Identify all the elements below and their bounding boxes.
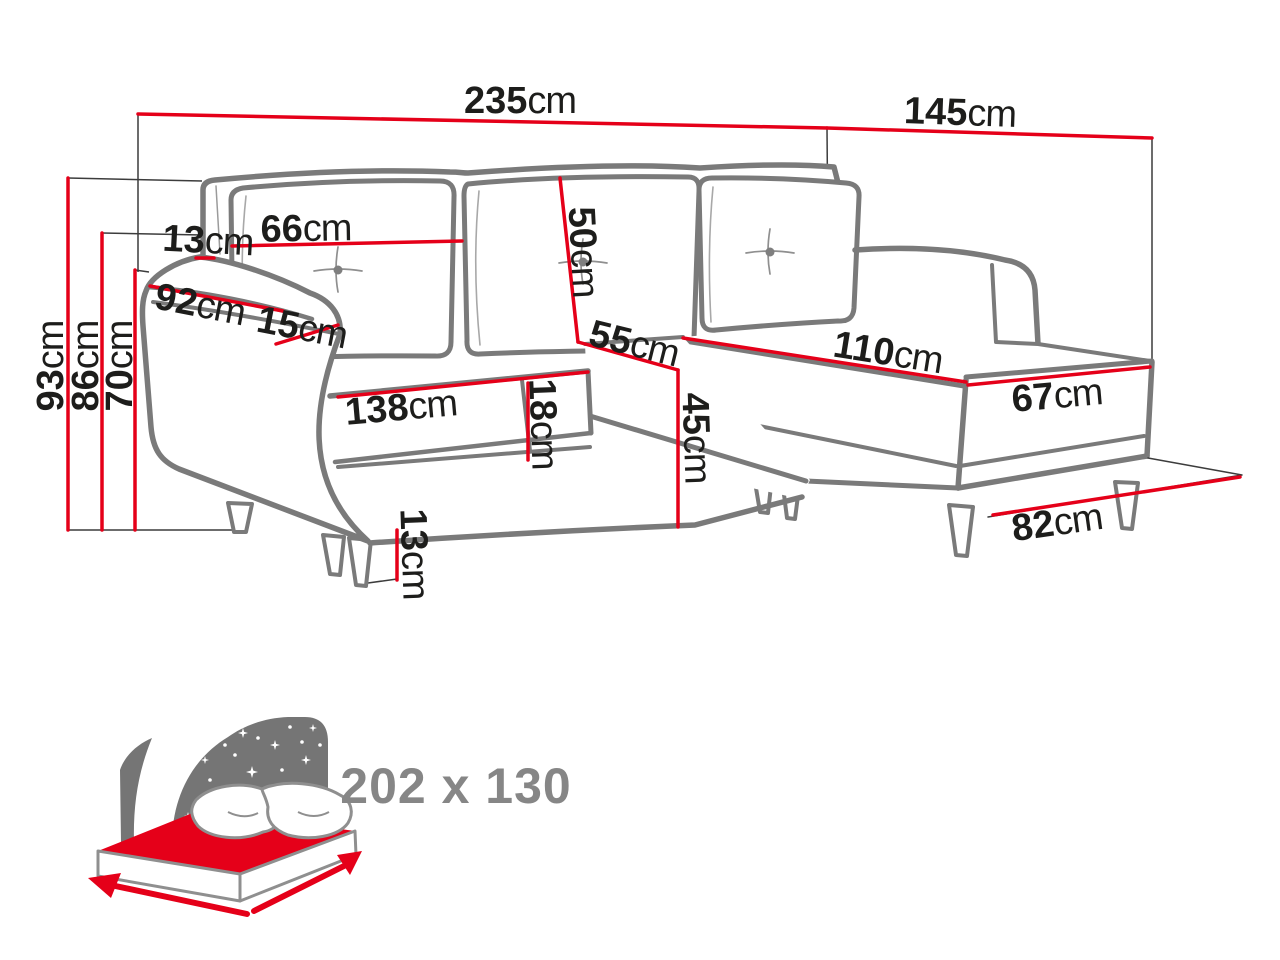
sofa-dimension-diagram: 235cm 145cm 93cm 86cm 70cm 13cm 66cm 50c… <box>0 0 1280 960</box>
dim-value: 235 <box>464 80 527 122</box>
dim-unit: cm <box>1051 496 1105 544</box>
dim-label-back-cushion-width: 66cm <box>260 209 352 249</box>
dim-unit: cm <box>295 307 351 358</box>
dim-unit: cm <box>527 80 576 122</box>
dim-label-leg-height: 13cm <box>393 508 434 600</box>
dim-value: 13 <box>391 508 434 552</box>
dim-unit: cm <box>193 284 249 335</box>
dim-unit: cm <box>302 207 351 250</box>
dim-label-back-cushion-height: 50cm <box>562 206 605 299</box>
sleeping-area-size-label: 202 x 130 <box>340 761 571 811</box>
pillows <box>192 783 352 837</box>
dim-value: 18 <box>520 378 563 422</box>
dim-unit: cm <box>1052 371 1104 417</box>
dim-unit: cm <box>891 333 946 382</box>
dim-label-seat-back-height: 70cm <box>101 321 139 412</box>
dim-label-total-width: 235cm <box>464 82 576 120</box>
dim-label-total-depth: 145cm <box>903 92 1016 134</box>
dim-unit: cm <box>522 420 566 470</box>
dim-label-seat-cushion-height: 18cm <box>522 378 563 470</box>
dim-value: 67 <box>1010 375 1056 421</box>
dim-label-chaise-width: 67cm <box>1010 373 1104 419</box>
dim-label-back-top-offset: 13cm <box>162 220 255 263</box>
dim-value: 145 <box>903 90 968 134</box>
dim-unit: cm <box>407 382 459 428</box>
sleeping-bed-icon <box>88 717 362 914</box>
dim-unit: cm <box>99 321 141 370</box>
dim-unit: cm <box>967 92 1017 136</box>
dim-label-seat-height: 45cm <box>675 392 716 484</box>
dim-unit: cm <box>393 550 437 600</box>
dim-value: 66 <box>260 208 303 251</box>
dim-unit: cm <box>675 434 719 484</box>
dim-value: 82 <box>1009 503 1057 550</box>
dim-value: 13 <box>161 218 205 262</box>
dim-value: 138 <box>343 386 410 433</box>
dim-value: 50 <box>560 205 604 249</box>
star-panel-sliver <box>120 738 152 843</box>
dim-unit: cm <box>562 248 606 299</box>
dim-value: 70 <box>99 369 141 411</box>
dim-label-seat-width: 138cm <box>344 384 459 432</box>
dim-value: 45 <box>673 392 716 436</box>
diagram-canvas <box>0 0 1280 960</box>
dim-unit: cm <box>204 220 255 264</box>
